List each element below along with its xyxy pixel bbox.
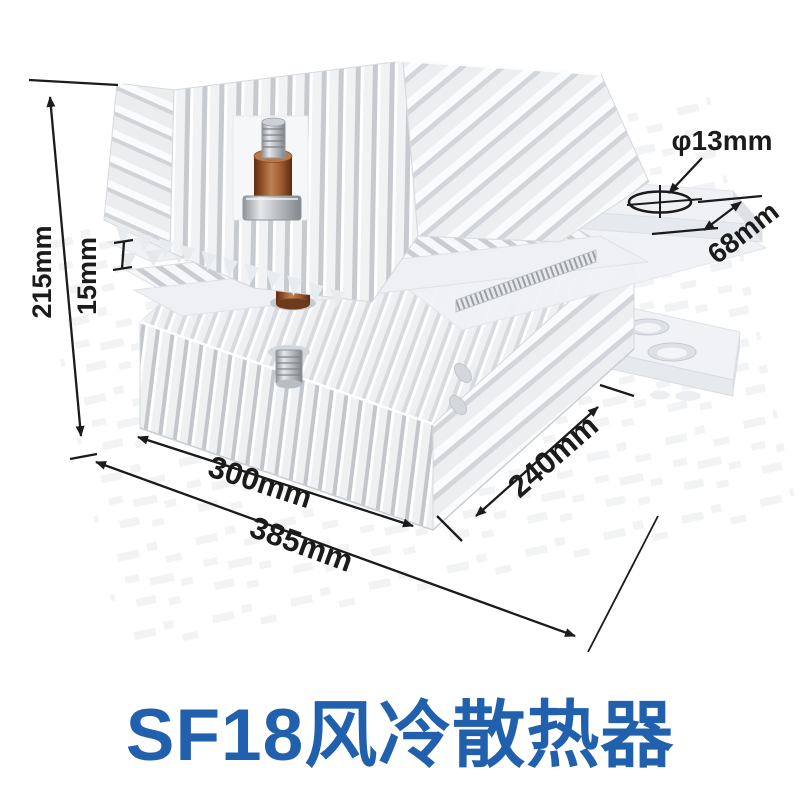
insulator-bottom xyxy=(276,299,310,310)
bolt-base xyxy=(276,380,302,389)
clamp-bolt-top xyxy=(262,118,285,158)
clamp-bolt-bottom xyxy=(276,350,302,389)
bar-hole-inner xyxy=(635,323,661,333)
bar-foot xyxy=(650,391,670,400)
bar-hole-inner xyxy=(657,348,687,359)
bolt-body xyxy=(276,350,302,384)
product-title: SF18风冷散热器 xyxy=(0,686,800,786)
extension-tick xyxy=(29,80,118,85)
dim-height-label: 215mm xyxy=(27,225,57,318)
bar-foot xyxy=(675,391,701,401)
dim-hole-label: φ13mm xyxy=(672,125,773,156)
bolt-top xyxy=(262,118,285,126)
product-dimension-diagram: 215mm 15mm φ13mm 68mm 300mm 240mm 385mm … xyxy=(0,0,800,800)
dim-gap-label: 15mm xyxy=(72,237,102,315)
bolt-body xyxy=(262,122,285,158)
heatsink-illustration: 215mm 15mm φ13mm 68mm 300mm 240mm 385mm xyxy=(0,0,800,800)
